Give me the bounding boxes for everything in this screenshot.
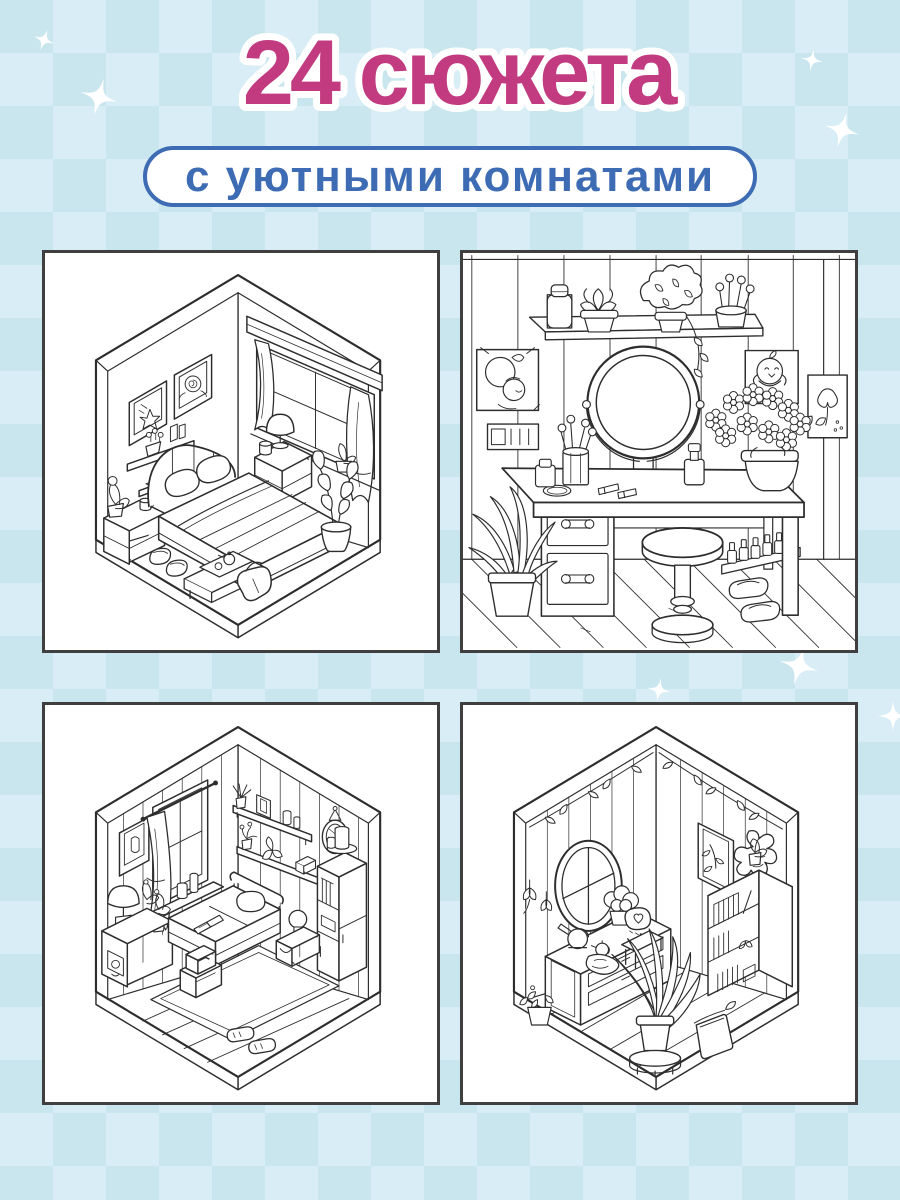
plant-room-illustration bbox=[463, 705, 855, 1102]
coloring-panel-bedroom-isometric bbox=[42, 250, 440, 653]
vanity-table-illustration bbox=[463, 253, 855, 650]
coloring-panel-bedroom-shelves bbox=[42, 702, 440, 1105]
coloring-panel-plant-room bbox=[460, 702, 858, 1105]
coloring-panel-vanity-table bbox=[460, 250, 858, 653]
page-title: 24 сюжета bbox=[0, 0, 900, 140]
subtitle-pill: с уютными комнатами bbox=[143, 146, 757, 207]
title-text: 24 сюжета bbox=[243, 22, 678, 124]
subtitle-label: с уютными комнатами bbox=[185, 155, 715, 199]
bedroom-with-shelves-illustration bbox=[45, 705, 437, 1102]
isometric-bedroom-illustration bbox=[45, 253, 437, 650]
